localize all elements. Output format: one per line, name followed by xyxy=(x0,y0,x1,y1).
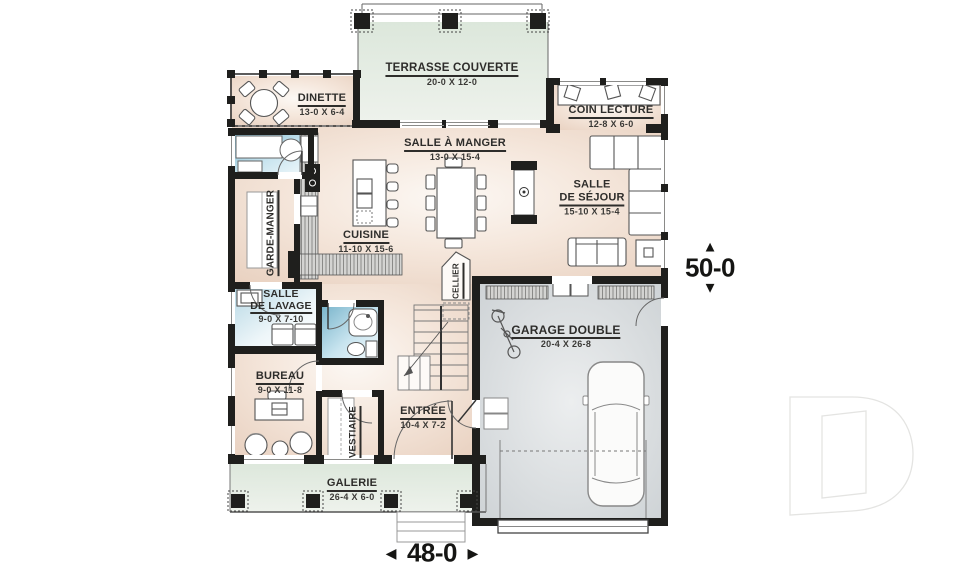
room-label-bureau: BUREAU 9-0 X 11-8 xyxy=(256,370,304,396)
car xyxy=(583,362,649,506)
width-value: 48-0 xyxy=(407,541,457,566)
overall-width-dimension: ◄ 48-0 ► xyxy=(382,541,482,566)
side-table xyxy=(636,240,662,266)
loveseat xyxy=(568,238,626,266)
room-label-dinette: DINETTE 13-0 X 6-4 xyxy=(298,92,346,118)
room-label-terrasse: TERRASSE COUVERTE 20-0 X 12-0 xyxy=(385,62,518,88)
arrow-right-icon: ► xyxy=(464,545,482,561)
watermark-logo xyxy=(790,397,913,515)
depth-value: 50-0 xyxy=(685,256,735,281)
room-label-cellier: CELLIER xyxy=(450,263,465,299)
arrow-left-icon: ◄ xyxy=(382,545,400,561)
room-label-salle-de-lavage: SALLE DE LAVAGE 9-0 X 7-10 xyxy=(250,289,312,325)
backyard-double-door xyxy=(553,283,588,296)
room-label-galerie: GALERIE 26-4 X 6-0 xyxy=(327,477,377,503)
room-label-salle-de-sejour: SALLE DE SÉJOUR 15-10 X 15-4 xyxy=(559,179,624,218)
garage-door xyxy=(498,520,648,533)
arrow-down-icon: ▼ xyxy=(685,281,735,297)
fireplace xyxy=(511,161,537,224)
room-label-salle-a-manger: SALLE À MANGER 13-0 X 15-4 xyxy=(404,137,506,163)
bathroom-fixtures xyxy=(348,309,378,357)
floor-plan-page: TERRASSE COUVERTE 20-0 X 12-0 DINETTE 13… xyxy=(0,0,960,569)
window-seat xyxy=(558,83,660,105)
room-label-entree: ENTRÉE 10-4 X 7-2 xyxy=(400,405,446,431)
room-label-garage: GARAGE DOUBLE 20-4 X 26-8 xyxy=(511,324,620,350)
room-label-cuisine: CUISINE 11-10 X 15-6 xyxy=(338,229,393,255)
garage-entry-steps xyxy=(484,398,508,429)
room-label-vestiaire: VESTIAIRE xyxy=(347,406,362,458)
room-label-garde-manger: GARDE-MANGER xyxy=(265,190,280,276)
overall-depth-dimension: ▲ 50-0 ▼ xyxy=(685,240,735,297)
room-label-coin-lecture: COIN LECTURE 12-8 X 6-0 xyxy=(569,104,654,130)
